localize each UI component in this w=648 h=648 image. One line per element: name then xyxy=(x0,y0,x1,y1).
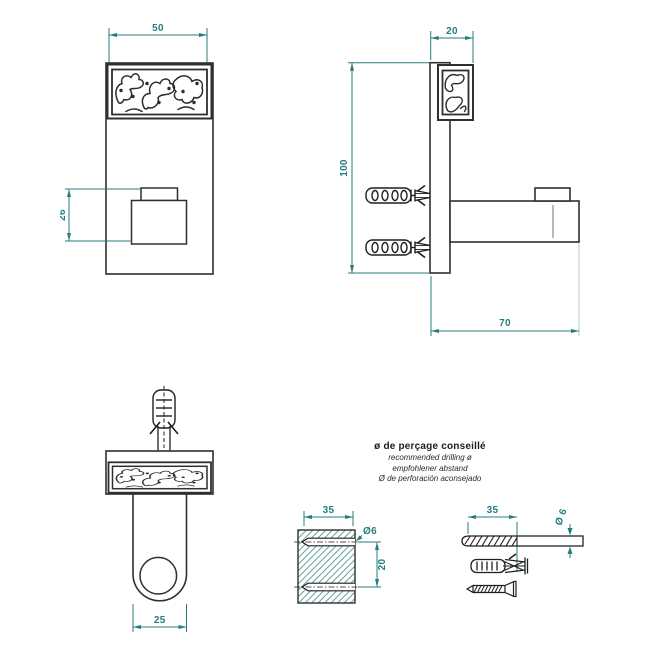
drilling-note-title: ø de perçage conseillé xyxy=(330,441,530,452)
top-view-knob-circle xyxy=(140,557,177,594)
side-arm xyxy=(450,201,579,242)
top-view-anchor xyxy=(150,386,178,451)
drill-flute-label: 35 xyxy=(487,505,499,516)
front-view-drawing: 50 26 xyxy=(60,18,280,280)
top-view-drawing: 25 xyxy=(78,378,308,640)
side-decor-box xyxy=(438,65,473,120)
wall-section-drawing: 35 Ø6 20 xyxy=(288,503,403,618)
side-height-label: 100 xyxy=(339,159,350,177)
technical-drawing-sheet: 50 26 xyxy=(0,0,648,648)
top-arm-width-label: 25 xyxy=(154,615,166,626)
side-knob xyxy=(535,188,570,201)
wall-plug xyxy=(471,554,528,575)
drilling-note-de: empfohlener abstand xyxy=(330,464,530,475)
wall-hole-diameter-callout xyxy=(356,536,363,542)
drill-diameter-label: Ø 6 xyxy=(553,507,569,527)
drilling-note-en: recommended drilling ø xyxy=(330,453,530,464)
side-projection-label: 70 xyxy=(499,318,511,329)
wall-hole-diameter-label: Ø6 xyxy=(363,526,377,537)
side-depth-label: 20 xyxy=(446,26,458,37)
drill-bit xyxy=(462,536,583,546)
drilling-note: ø de perçage conseillé recommended drill… xyxy=(330,441,530,485)
side-anchor-top xyxy=(366,186,430,206)
screw xyxy=(467,582,516,597)
front-width-label: 50 xyxy=(152,23,164,34)
hardware-drawing: 35 Ø 6 xyxy=(453,498,603,613)
side-anchor-bottom xyxy=(366,238,430,258)
drilling-note-es: Ø de perforación aconsejado xyxy=(330,474,530,485)
front-hook-offset-label: 26 xyxy=(60,209,68,221)
wall-hole-spacing-label: 20 xyxy=(377,559,388,571)
wall-drill-depth-label: 35 xyxy=(323,505,335,516)
side-view-drawing: 20 100 xyxy=(335,18,600,343)
